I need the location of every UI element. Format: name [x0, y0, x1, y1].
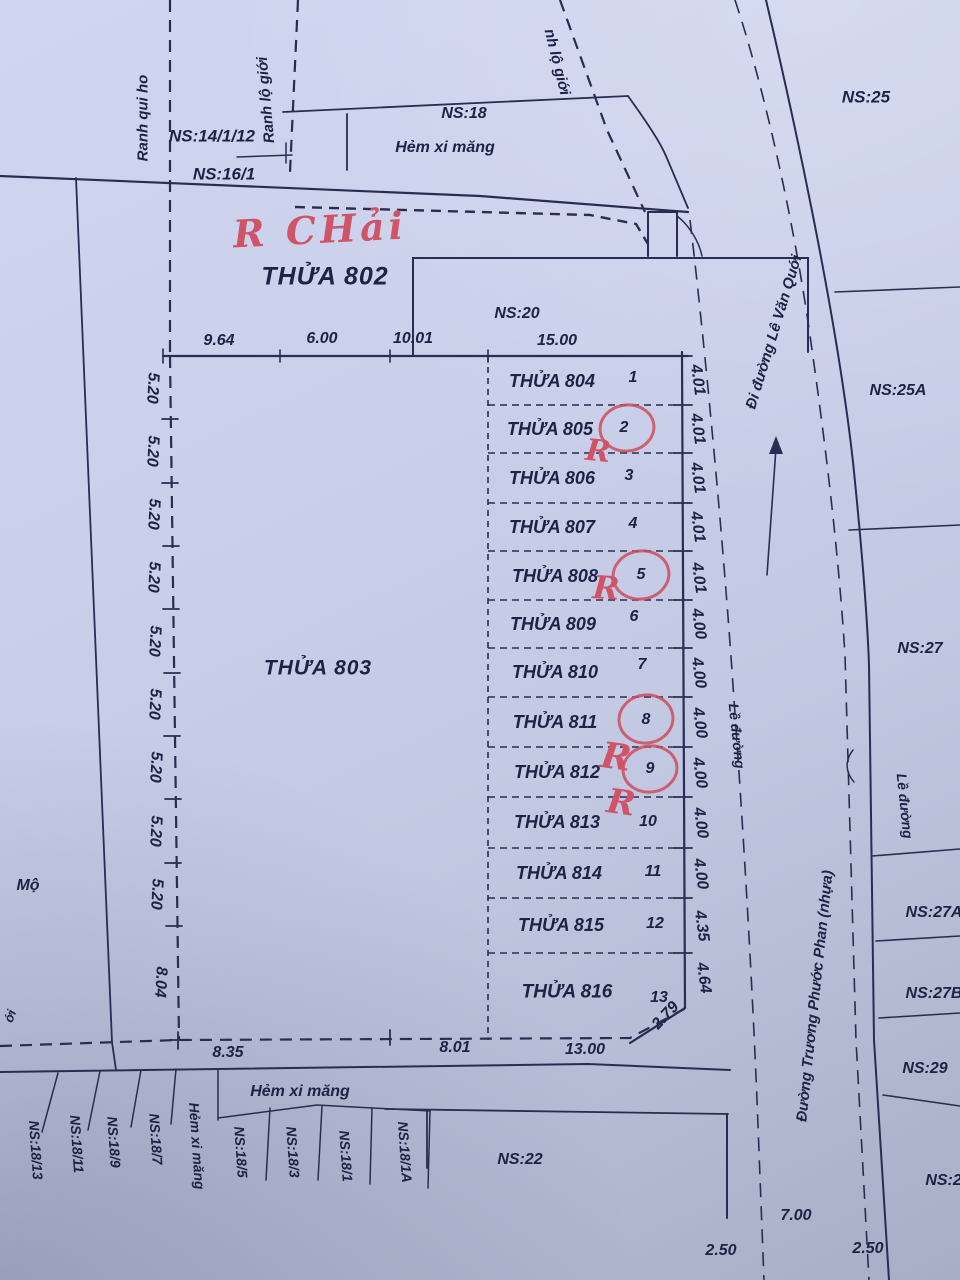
plot-row-label: THỬA 816	[522, 983, 613, 1002]
plot-row-num: 10	[639, 814, 657, 830]
parcel-ns-18-9: NS:18/9	[105, 1116, 123, 1168]
cadastral-map: Ranh qui ho Ranh lộ giới nh lộ giới NS:1…	[0, 0, 960, 1280]
left-dim: 5.20	[146, 815, 164, 847]
alley-label-top: Hẻm xi măng	[395, 140, 495, 156]
red-r-mark: R	[599, 737, 634, 777]
red-r-mark: R	[605, 784, 638, 822]
plot-row-num: 6	[630, 609, 639, 625]
parcel-ns-18-13: NS:18/13	[27, 1120, 45, 1180]
parcel-ns-18: NS:18	[441, 106, 486, 122]
handwritten-r-chai: R CHải	[232, 206, 408, 253]
parcel-ns-28-clipped: NS:28	[925, 1173, 960, 1189]
parcel-ns-27b: NS:27B	[906, 986, 960, 1002]
plot-803-label: THỬA 803	[264, 658, 372, 679]
dim-2-50-left: 2.50	[705, 1243, 736, 1259]
plot-side-dim: 4.00	[689, 756, 709, 789]
red-r-mark: R	[592, 571, 621, 605]
alley-label-bottom: Hẻm xi măng	[250, 1084, 350, 1100]
parcel-ns-29: NS:29	[902, 1061, 947, 1077]
survey-linework	[0, 0, 960, 1280]
plot-side-dim: 4.64	[693, 961, 713, 994]
parcel-ns-16-1: NS:16/1	[193, 166, 255, 183]
parcel-ns-18-7: NS:18/7	[147, 1113, 165, 1165]
plot-row-label: THỬA 810	[512, 663, 598, 681]
plot-row-label: THỬA 812	[514, 763, 600, 781]
dim-10-01: 10.01	[393, 331, 433, 347]
plot-row-num: 11	[645, 864, 662, 880]
plot-row-label: THỬA 809	[510, 615, 596, 633]
parcel-ns-18-1a: NS:18/1A	[396, 1121, 414, 1183]
parcel-ns-27: NS:27	[897, 641, 942, 657]
left-dim: 8.04	[151, 966, 169, 998]
plot-side-dim: 4.01	[687, 412, 707, 445]
dim-6-00: 6.00	[306, 331, 337, 347]
grave-label-mo: Mộ	[16, 878, 39, 894]
plot-row-label: THỬA 811	[513, 713, 598, 731]
plot-row-num: 12	[646, 916, 664, 932]
parcel-ns-25a: NS:25A	[870, 383, 927, 399]
plot-row-num: 1	[629, 370, 638, 386]
plot-row-label: THỬA 805	[507, 420, 593, 438]
red-r-mark: R	[584, 436, 612, 468]
plot-row-num: 3	[625, 468, 634, 484]
dim-8-35: 8.35	[212, 1045, 243, 1061]
parcel-ns-27a: NS:27A	[906, 905, 960, 921]
left-dim: 5.20	[147, 878, 165, 910]
dim-8-01: 8.01	[439, 1040, 470, 1056]
left-dim: 5.20	[145, 688, 163, 720]
dim-2-50-right: 2.50	[852, 1241, 883, 1257]
parcel-ns-18-5: NS:18/5	[232, 1126, 250, 1178]
plot-side-dim: 4.00	[690, 806, 710, 839]
ranh-qui-hoach-label: Ranh qui ho	[136, 75, 151, 162]
plot-row-num: 7	[638, 657, 647, 673]
plot-row-label: THỬA 806	[509, 469, 595, 487]
dim-9-64: 9.64	[203, 333, 234, 349]
left-dim: 5.20	[145, 625, 163, 657]
plot-row-num: 4	[629, 516, 638, 532]
dim-15-00: 15.00	[537, 333, 577, 349]
dim-7-00: 7.00	[780, 1208, 811, 1224]
plot-side-dim: 4.01	[687, 363, 707, 396]
plot-row-label: THỬA 815	[518, 916, 604, 934]
parcel-ns-18-11: NS:18/11	[68, 1115, 86, 1174]
plot-side-dim: 4.00	[688, 607, 708, 640]
left-dim: 5.20	[143, 435, 161, 467]
plot-row-label: THỬA 804	[509, 372, 595, 390]
plot-side-dim: 4.01	[687, 510, 707, 543]
parcel-ns-20: NS:20	[494, 306, 539, 322]
plot-row-num: 5	[637, 567, 646, 583]
left-dim: 5.20	[144, 561, 162, 593]
parcel-ns-18-1: NS:18/1	[337, 1130, 355, 1182]
parcel-ns-14-1-12: NS:14/1/12	[169, 128, 255, 145]
left-dim: 5.20	[146, 751, 164, 783]
left-dim: 5.20	[143, 372, 161, 404]
dim-13-00: 13.00	[565, 1042, 605, 1058]
plot-side-dim: 4.01	[688, 561, 708, 594]
plot-side-dim: 4.01	[687, 461, 707, 494]
parcel-ns-25: NS:25	[842, 89, 890, 106]
plot-side-dim: 4.00	[689, 706, 709, 739]
plot-side-dim: 4.00	[688, 656, 708, 689]
left-dim: 5.20	[144, 498, 162, 530]
plot-row-num: 2	[620, 420, 629, 436]
plot-row-label: THỬA 813	[514, 813, 600, 831]
parcel-ns-22: NS:22	[497, 1152, 542, 1168]
parcel-ns-18-3: NS:18/3	[284, 1126, 302, 1178]
plot-row-label: THỬA 808	[512, 567, 598, 585]
plot-side-dim: 4.00	[690, 857, 710, 890]
plot-row-num: 9	[646, 761, 655, 777]
plot-row-num: 8	[642, 712, 651, 728]
plot-802-label: THỬA 802	[261, 265, 388, 290]
plot-side-dim: 4.35	[691, 909, 711, 942]
plot-row-label: THỬA 814	[516, 864, 602, 882]
plot-row-label: THỬA 807	[509, 518, 595, 536]
